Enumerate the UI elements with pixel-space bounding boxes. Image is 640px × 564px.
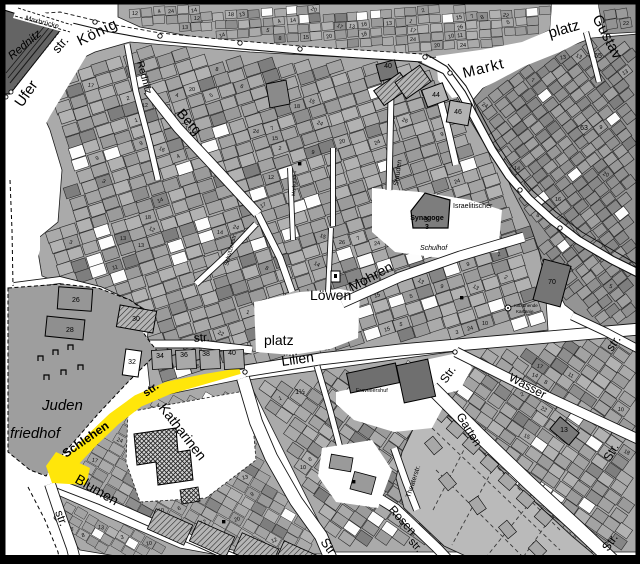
svg-text:13: 13 (182, 25, 188, 31)
svg-text:10: 10 (146, 541, 153, 548)
svg-text:26: 26 (72, 297, 80, 304)
svg-text:20: 20 (189, 87, 195, 93)
svg-text:platz: platz (264, 332, 294, 348)
svg-text:3: 3 (425, 224, 429, 231)
svg-text:Schulhof: Schulhof (420, 245, 448, 252)
svg-text:36: 36 (180, 352, 188, 359)
svg-text:32: 32 (128, 359, 136, 366)
svg-text:12: 12 (132, 11, 138, 17)
svg-text:40: 40 (384, 63, 392, 70)
svg-text:24: 24 (460, 43, 466, 49)
svg-text:17: 17 (87, 82, 94, 89)
svg-text:Juden: Juden (41, 397, 83, 414)
svg-text:24: 24 (252, 129, 259, 136)
svg-text:13: 13 (560, 427, 568, 434)
svg-text:8: 8 (278, 36, 281, 42)
svg-text:5: 5 (399, 322, 402, 328)
svg-text:28: 28 (66, 327, 74, 334)
svg-text:rotblühende: rotblühende (514, 303, 538, 308)
svg-text:26: 26 (339, 240, 346, 246)
svg-text:9: 9 (440, 284, 444, 290)
svg-text:15: 15 (303, 35, 309, 41)
svg-text:Fraveliershuf: Fraveliershuf (356, 388, 388, 394)
svg-text:str.: str. (193, 330, 210, 345)
svg-text:40: 40 (228, 350, 236, 357)
svg-text:15: 15 (272, 136, 279, 143)
svg-text:1½: 1½ (295, 388, 305, 396)
svg-text:44: 44 (432, 92, 440, 99)
svg-text:friedhof: friedhof (10, 425, 62, 442)
svg-text:22: 22 (623, 21, 629, 27)
svg-text:13: 13 (138, 243, 144, 249)
svg-text:10: 10 (300, 465, 306, 471)
svg-text:14: 14 (191, 7, 198, 14)
svg-text:18: 18 (228, 12, 235, 19)
svg-text:24: 24 (168, 9, 175, 15)
svg-text:24: 24 (374, 241, 381, 248)
svg-text:12: 12 (194, 16, 201, 22)
svg-text:10: 10 (482, 321, 488, 327)
svg-text:13: 13 (120, 236, 126, 242)
svg-text:Synagoge: Synagoge (410, 215, 444, 222)
svg-text:18: 18 (294, 104, 300, 110)
svg-text:70: 70 (548, 279, 556, 286)
svg-text:Israelitischer: Israelitischer (453, 203, 493, 210)
svg-text:16: 16 (361, 21, 368, 28)
svg-text:30: 30 (132, 316, 140, 323)
svg-text:46: 46 (454, 109, 462, 116)
svg-text:Kastanie: Kastanie (516, 309, 534, 314)
svg-text:65: 65 (594, 53, 602, 60)
svg-text:34: 34 (156, 353, 164, 360)
svg-text:38: 38 (202, 351, 210, 358)
svg-text:20: 20 (434, 42, 441, 49)
svg-text:9: 9 (599, 125, 602, 131)
svg-text:24: 24 (410, 37, 416, 43)
svg-text:14: 14 (217, 230, 224, 237)
svg-text:3: 3 (455, 330, 459, 336)
svg-text:16: 16 (555, 197, 561, 203)
svg-text:11: 11 (457, 33, 463, 40)
svg-text:14: 14 (290, 18, 297, 25)
svg-text:18: 18 (145, 215, 152, 222)
svg-text:63: 63 (580, 125, 588, 132)
svg-text:12: 12 (268, 175, 274, 181)
svg-text:10: 10 (617, 407, 624, 414)
svg-text:2: 2 (278, 146, 281, 152)
svg-text:14: 14 (514, 166, 520, 172)
svg-text:Löwen: Löwen (310, 287, 351, 303)
